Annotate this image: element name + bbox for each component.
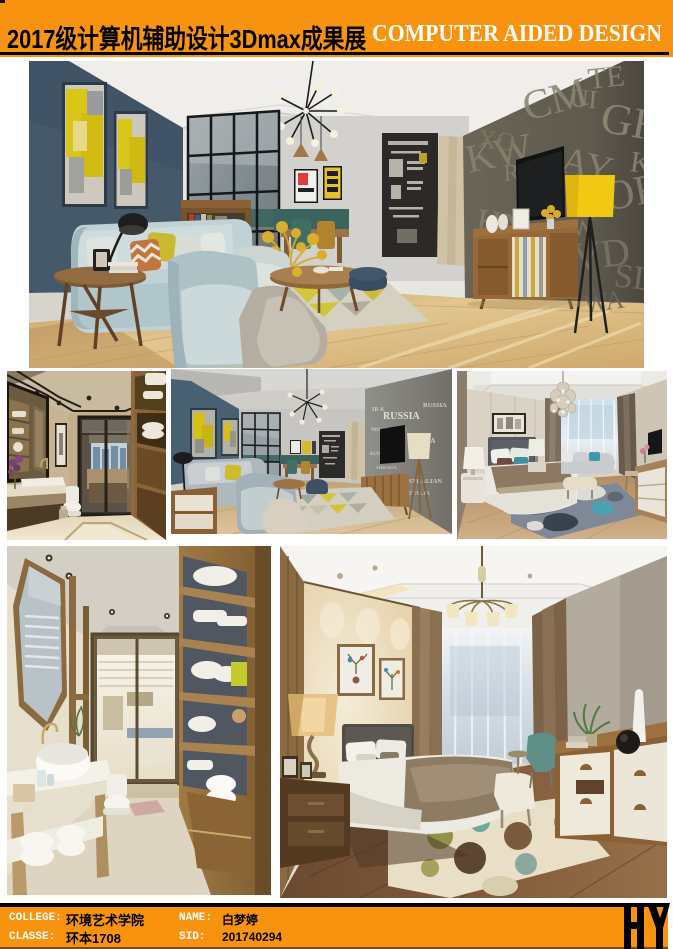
svg-text:IR K: IR K [372,407,385,413]
svg-text:UI: UI [568,83,598,114]
svg-text:RUSSIA: RUSSIA [423,402,447,409]
svg-text:XO: XO [476,124,516,157]
svg-text:RUSSIA: RUSSIA [383,411,420,422]
svg-text:SIBERIA: SIBERIA [376,466,397,471]
